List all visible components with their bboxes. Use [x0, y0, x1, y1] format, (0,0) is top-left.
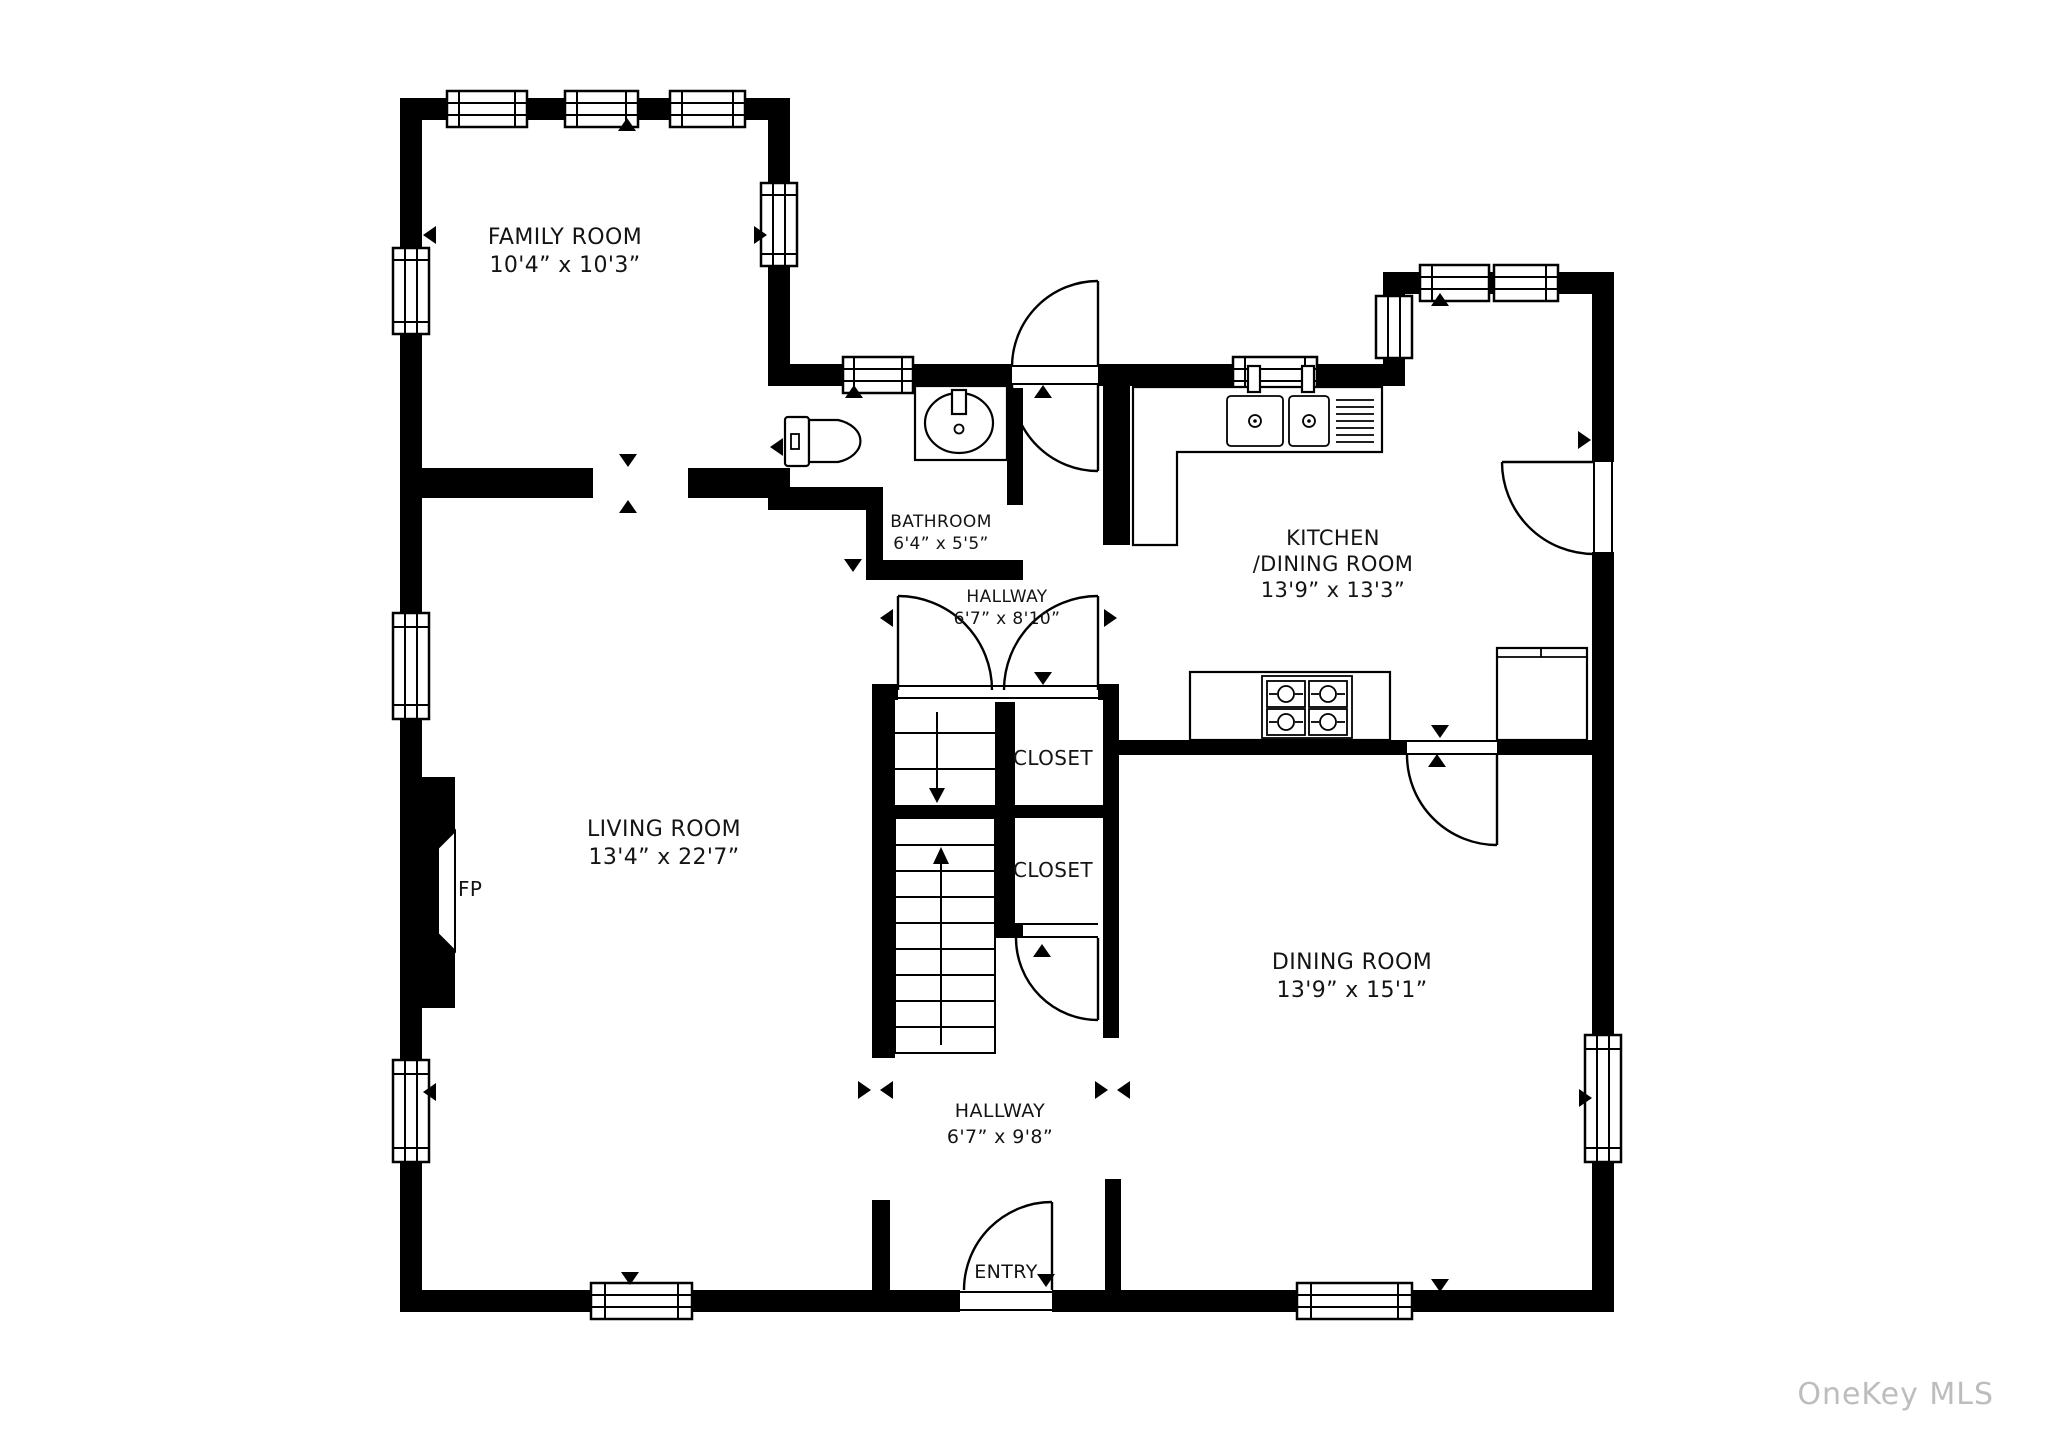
refrigerator — [1497, 648, 1587, 740]
living-room-dims: 13'4” x 22'7” — [588, 845, 739, 870]
marker-left — [880, 609, 893, 627]
watermark: OneKey MLS — [1797, 1377, 1994, 1412]
dining-room-label: DINING ROOM — [1272, 950, 1432, 975]
toilet — [785, 417, 860, 466]
bathroom-dims: 6'4” x 5'5” — [893, 534, 989, 554]
opening-bathroom-door — [1005, 505, 1025, 560]
window-family-left — [393, 248, 429, 334]
wall-family-bottom-left — [422, 468, 593, 498]
fireplace-label: FP — [458, 877, 482, 901]
side-door-out-swing — [1012, 281, 1098, 367]
marker-left — [880, 1081, 893, 1099]
stairs-up-arrow — [933, 847, 949, 864]
kitchen-label-2: /DINING ROOM — [1253, 552, 1414, 576]
hallway-upper-label: HALLWAY — [966, 587, 1047, 607]
drainboard — [1336, 400, 1374, 442]
wall-kitchen-dining-divider — [1118, 740, 1607, 755]
window-kitchen-west — [1376, 296, 1412, 358]
window-family-right — [761, 183, 797, 266]
dining-room-dims: 13'9” x 15'1” — [1276, 978, 1427, 1003]
marker-right — [858, 1081, 871, 1099]
closet-lower-door — [1016, 938, 1098, 1020]
marker-down — [619, 454, 637, 467]
wall-core-left — [872, 684, 895, 1058]
wall-bathroom-right-stub — [1007, 560, 1023, 580]
window-kitchen-top-1 — [1420, 265, 1489, 301]
window-family-top-3 — [670, 91, 745, 127]
fireplace — [422, 777, 455, 1008]
family-room-label: FAMILY ROOM — [488, 225, 642, 250]
bathroom-label: BATHROOM — [890, 512, 992, 532]
window-living-left-2 — [393, 1060, 429, 1162]
kitchen-sink-counter — [1133, 366, 1382, 545]
closet-lower-label: CLOSET — [1013, 858, 1093, 882]
hallway-upper-dims: 6'7” x 8'10” — [954, 609, 1061, 629]
stairs-upper-flight — [895, 712, 995, 803]
family-room-dims: 10'4” x 10'3” — [489, 253, 640, 278]
hallway-lower-label: HALLWAY — [955, 1100, 1045, 1122]
wall-stair-closet-divider — [995, 700, 1015, 938]
marker-down — [844, 559, 862, 572]
hallway-lower-dims: 6'7” x 9'8” — [947, 1126, 1053, 1148]
stairs-lower-flight — [895, 818, 995, 1053]
wall-between-flights — [895, 805, 1103, 818]
wall-closet2-bottom — [995, 923, 1023, 938]
stairs-down-arrow — [929, 788, 945, 803]
window-family-top-1 — [447, 91, 527, 127]
window-living-bottom — [591, 1283, 692, 1319]
entry-label: ENTRY — [974, 1261, 1037, 1283]
wall-hall-kitchen — [1103, 386, 1130, 545]
window-living-left-1 — [393, 613, 429, 719]
wall-hall-right-stub — [1105, 1179, 1121, 1290]
marker-up — [619, 500, 637, 513]
floor-plan-drawing: FAMILY ROOM 10'4” x 10'3” BATHROOM 6'4” … — [0, 0, 2048, 1433]
bathroom-sink — [915, 386, 1007, 460]
stove-counter — [1190, 672, 1390, 740]
side-door-in-swing — [1012, 385, 1098, 471]
kitchen-dims: 13'9” x 13'3” — [1261, 578, 1405, 602]
floor-plan-page: FAMILY ROOM 10'4” x 10'3” BATHROOM 6'4” … — [0, 0, 2048, 1433]
marker-left — [770, 438, 783, 456]
kitchen-exterior-door — [1502, 462, 1594, 554]
marker-left — [423, 226, 436, 244]
wall-bathroom-bottom — [866, 560, 1007, 580]
marker-right — [1104, 609, 1117, 627]
window-kitchen-top-2 — [1494, 265, 1558, 301]
stairs — [895, 712, 995, 1053]
kitchen-dining-door — [1407, 755, 1497, 845]
wall-toilet-nook-bottom — [768, 487, 883, 510]
marker-right — [1578, 431, 1591, 449]
marker-down — [1431, 725, 1449, 738]
living-room-label: LIVING ROOM — [587, 817, 741, 842]
marker-right — [1095, 1081, 1108, 1099]
wall-hall-left-stub — [872, 1200, 890, 1290]
window-dining-bottom — [1297, 1283, 1412, 1319]
wall-core-right — [1103, 684, 1119, 1038]
opening-family-living — [593, 466, 688, 500]
kitchen-label: KITCHEN — [1286, 526, 1380, 550]
marker-up — [1033, 944, 1051, 957]
closet-upper-label: CLOSET — [1013, 746, 1093, 770]
marker-left — [1117, 1081, 1130, 1099]
wall-bath-connector — [866, 498, 883, 568]
